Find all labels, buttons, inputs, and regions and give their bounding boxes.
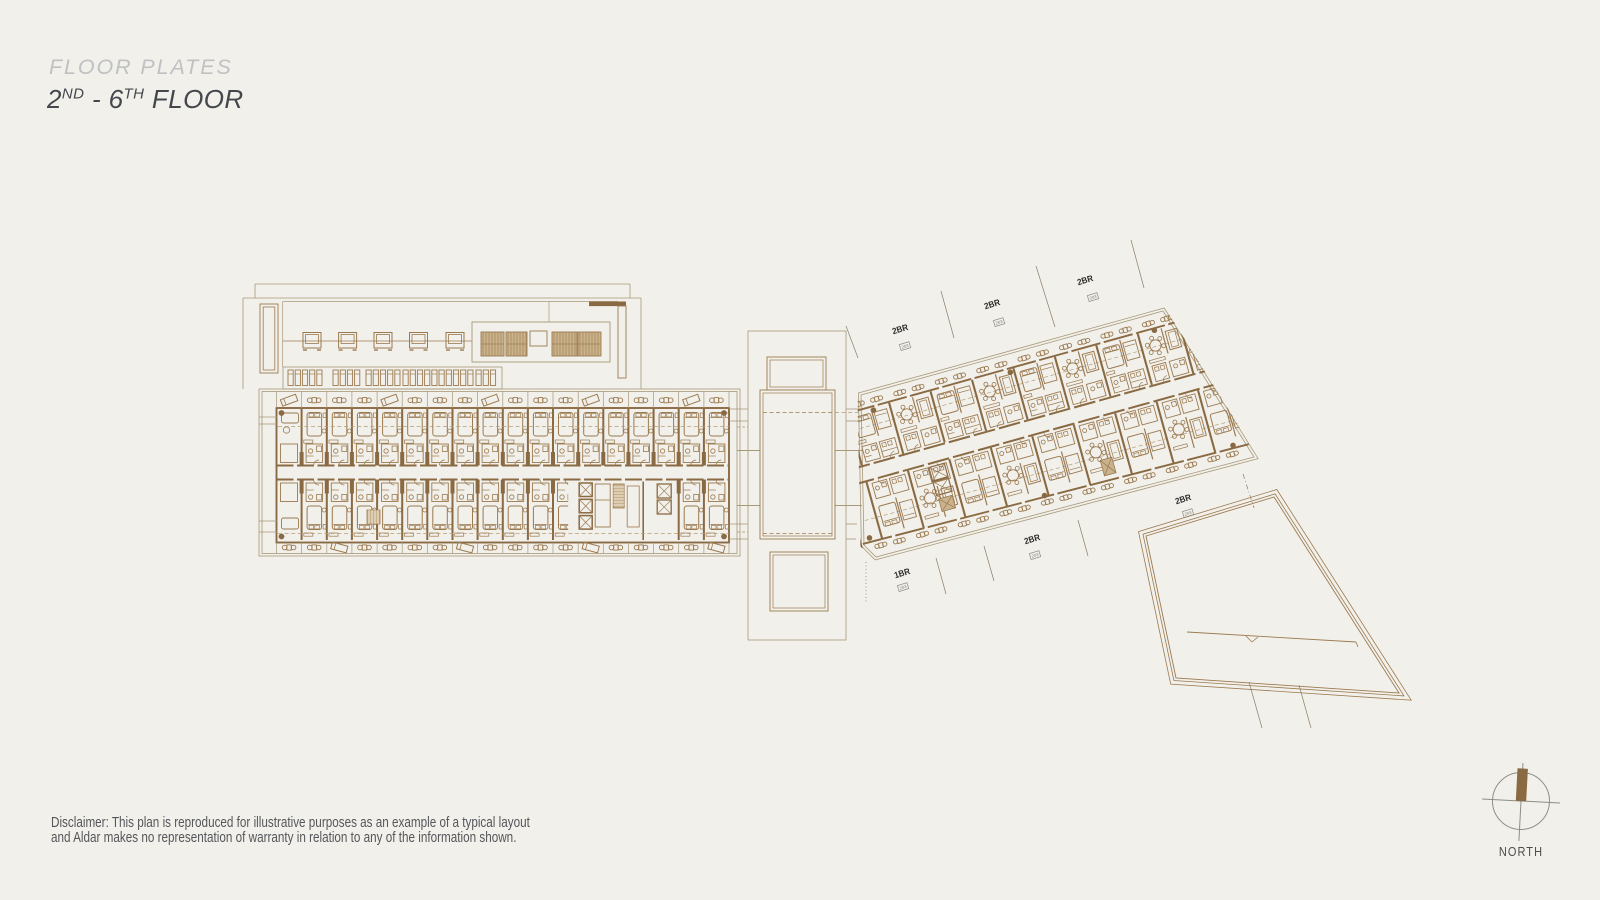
svg-text:2BR: 2BR bbox=[983, 297, 1002, 312]
svg-text:2BR: 2BR bbox=[1076, 273, 1095, 288]
svg-text:2BR: 2BR bbox=[891, 322, 910, 337]
svg-text:NORTH: NORTH bbox=[1499, 845, 1543, 859]
svg-text:2BR: 2BR bbox=[1023, 532, 1042, 547]
svg-text:1BR: 1BR bbox=[893, 566, 912, 581]
svg-text:2BR: 2BR bbox=[1174, 492, 1193, 507]
